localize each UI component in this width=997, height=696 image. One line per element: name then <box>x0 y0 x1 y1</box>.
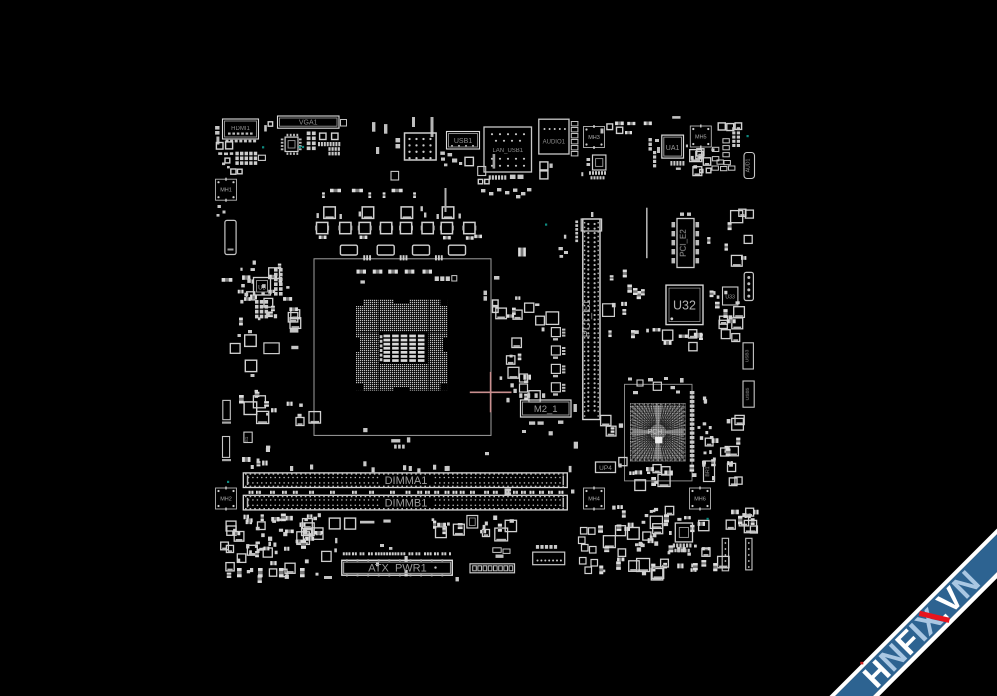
svg-text:PCI_E1: PCI_E1 <box>581 300 593 338</box>
svg-text:MH3: MH3 <box>588 135 600 141</box>
svg-text:USB5: USB5 <box>745 387 751 400</box>
svg-text:PCH: PCH <box>648 429 663 436</box>
svg-text:MH1: MH1 <box>220 188 232 194</box>
svg-text:LAN_USB1: LAN_USB1 <box>492 148 523 154</box>
svg-text:MH2: MH2 <box>220 497 232 503</box>
svg-text:DIMMB1: DIMMB1 <box>385 498 428 510</box>
svg-text:PCI_E2: PCI_E2 <box>679 229 688 257</box>
svg-text:S1: S1 <box>244 436 249 442</box>
svg-text:VGA1: VGA1 <box>299 120 318 127</box>
svg-text:MH4: MH4 <box>588 497 600 503</box>
svg-text:UP4: UP4 <box>599 465 612 472</box>
svg-text:BR1: BR1 <box>705 466 711 477</box>
svg-text:AUD1: AUD1 <box>746 158 752 172</box>
svg-text:UA1: UA1 <box>666 145 680 152</box>
svg-text:U8: U8 <box>258 286 266 292</box>
svg-text:MH6: MH6 <box>694 497 706 503</box>
svg-text:MH5: MH5 <box>695 135 707 141</box>
svg-text:AUDIO1: AUDIO1 <box>543 139 566 145</box>
svg-text:U32: U32 <box>673 299 696 313</box>
svg-text:U33: U33 <box>725 295 735 301</box>
svg-text:USB1: USB1 <box>454 138 472 145</box>
svg-text:HDMI1: HDMI1 <box>231 126 250 132</box>
svg-text:ATX_PWR1: ATX_PWR1 <box>368 563 426 575</box>
svg-text:USB3: USB3 <box>744 349 750 362</box>
svg-text:DIMMA1: DIMMA1 <box>385 475 428 487</box>
svg-text:M2_1: M2_1 <box>534 404 558 415</box>
